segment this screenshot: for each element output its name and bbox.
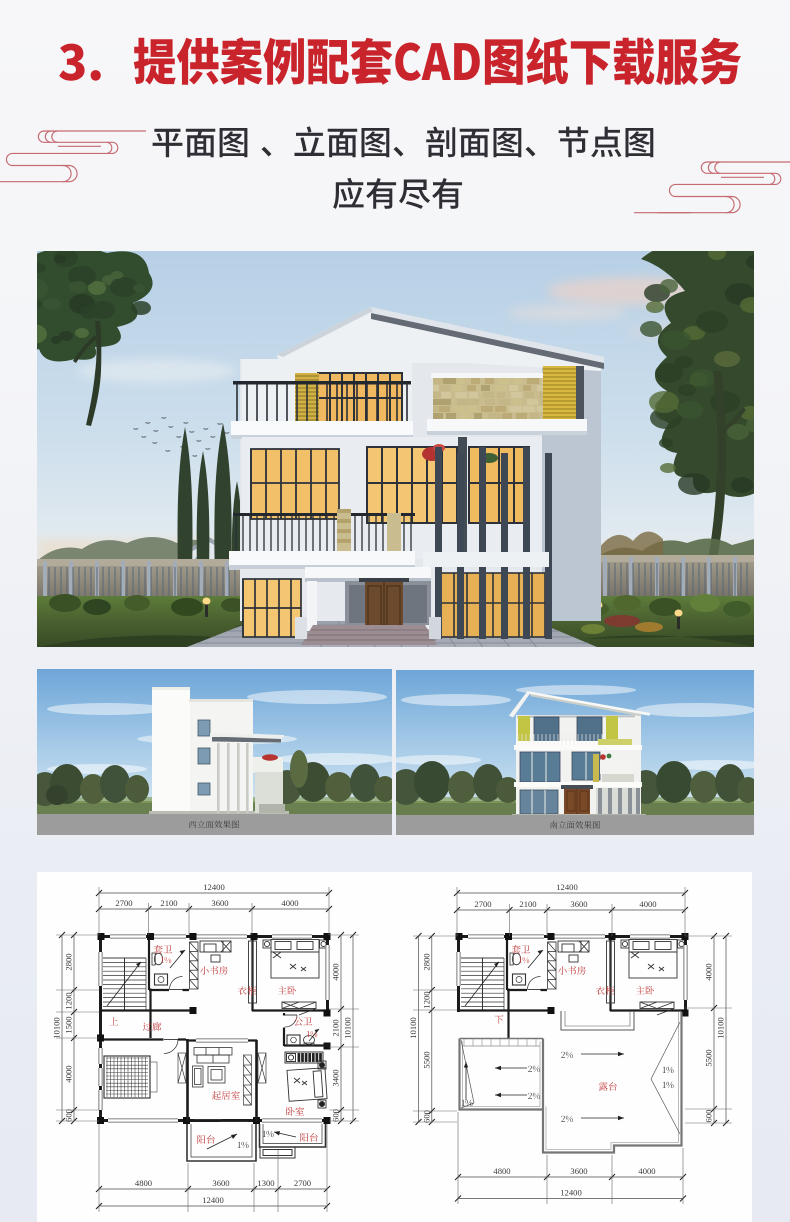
svg-text:2700: 2700 [294, 1178, 311, 1188]
svg-text:10100: 10100 [408, 1017, 418, 1038]
svg-text:4800: 4800 [493, 1166, 510, 1176]
svg-text:4800: 4800 [135, 1178, 152, 1188]
svg-text:3600: 3600 [212, 1178, 229, 1188]
svg-text:600: 600 [704, 1110, 714, 1123]
svg-text:12400: 12400 [560, 1188, 581, 1198]
svg-text:2800: 2800 [421, 953, 431, 970]
svg-text:2100: 2100 [160, 898, 177, 908]
svg-text:600: 600 [331, 1109, 341, 1122]
svg-text:10100: 10100 [716, 1017, 726, 1038]
svg-text:10100: 10100 [343, 1017, 353, 1038]
svg-text:2800: 2800 [64, 953, 74, 970]
svg-text:3600: 3600 [570, 899, 587, 909]
svg-text:2700: 2700 [115, 898, 132, 908]
svg-text:1200: 1200 [64, 992, 74, 1009]
svg-text:3400: 3400 [331, 1069, 341, 1086]
svg-text:600: 600 [421, 1110, 431, 1123]
svg-text:2700: 2700 [474, 899, 491, 909]
svg-text:3600: 3600 [211, 898, 228, 908]
svg-text:4000: 4000 [64, 1065, 74, 1082]
svg-text:12400: 12400 [202, 1195, 223, 1205]
svg-text:4000: 4000 [638, 1166, 655, 1176]
svg-text:5500: 5500 [421, 1051, 431, 1068]
svg-text:4000: 4000 [639, 899, 656, 909]
svg-text:3600: 3600 [570, 1166, 587, 1176]
svg-text:1500: 1500 [64, 1016, 74, 1033]
svg-text:12400: 12400 [556, 882, 577, 892]
svg-text:2100: 2100 [331, 1019, 341, 1036]
svg-text:4000: 4000 [704, 963, 714, 980]
svg-text:12400: 12400 [203, 882, 224, 892]
svg-text:1200: 1200 [421, 991, 431, 1008]
svg-text:4000: 4000 [281, 898, 298, 908]
svg-text:2100: 2100 [519, 899, 536, 909]
svg-text:4000: 4000 [331, 963, 341, 980]
svg-text:5500: 5500 [704, 1049, 714, 1066]
svg-text:1300: 1300 [257, 1178, 274, 1188]
svg-text:10100: 10100 [52, 1017, 62, 1038]
svg-text:600: 600 [64, 1109, 74, 1122]
